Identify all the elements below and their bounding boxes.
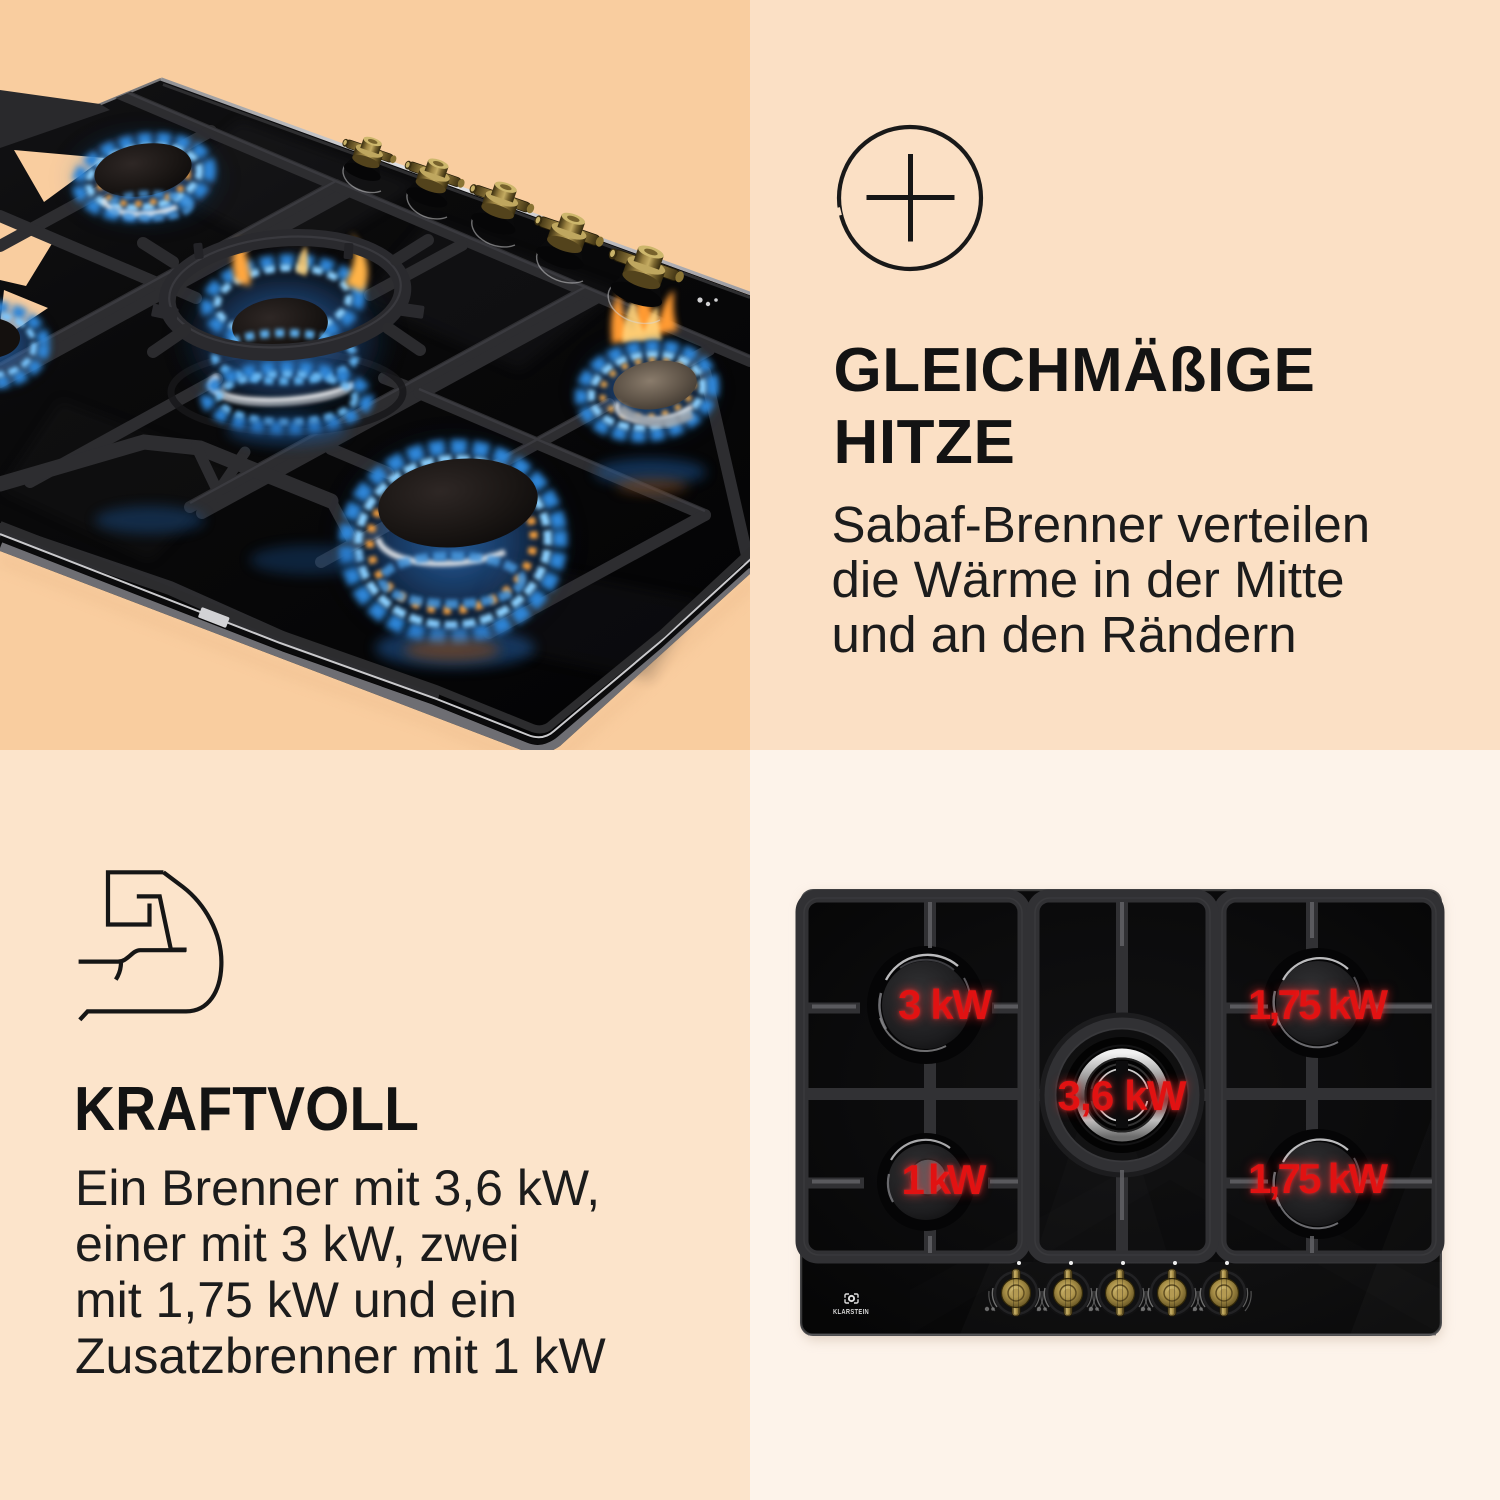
svg-text:1 kW: 1 kW	[902, 1156, 987, 1203]
svg-text:1,75 kW: 1,75 kW	[1248, 981, 1388, 1028]
svg-text:1,75 kW: 1,75 kW	[1248, 1155, 1388, 1202]
svg-text:3 kW: 3 kW	[898, 981, 992, 1028]
svg-text:3,6 kW: 3,6 kW	[1058, 1072, 1187, 1119]
svg-text:KLARSTEIN: KLARSTEIN	[833, 1307, 869, 1316]
